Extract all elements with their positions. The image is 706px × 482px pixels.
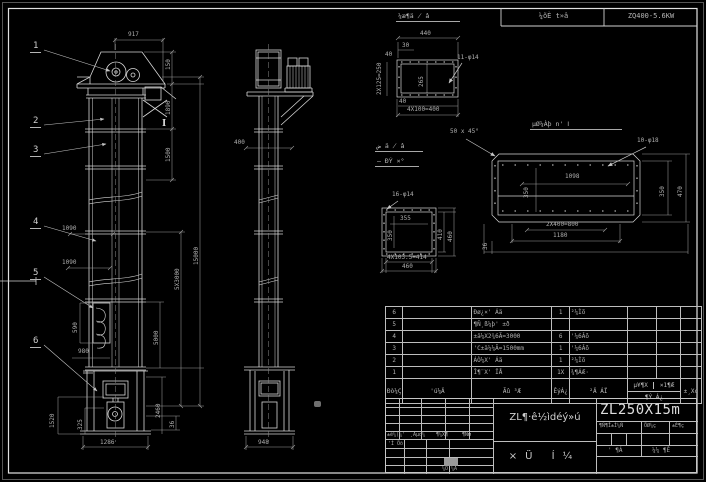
bom-cell: ¾¶ÁÆ·	[569, 367, 627, 379]
title-block-divider	[493, 399, 494, 474]
detail-top-flange-title: ¼æ¶ä ̸ â	[396, 13, 460, 22]
dim-4x100: 4X100=400	[407, 107, 440, 113]
bom-cell	[627, 319, 656, 331]
stage-label: ¶Ñ¶Î±Ì¼Ñ	[599, 424, 623, 429]
bom-cell: 1	[386, 367, 403, 379]
dim-948: 948	[258, 440, 269, 446]
dim-36: 36	[170, 421, 176, 428]
rev-label: ±ê¼(¼'	[387, 433, 405, 438]
bom-cell: 6	[386, 307, 403, 319]
drawing-subtitle: ×Ü Í¼	[493, 451, 596, 462]
signature-bottom-label: ¼Õ ¼Ä	[442, 467, 457, 472]
dim-4x103: 4X103.5=414	[387, 255, 427, 261]
bom-cell	[403, 331, 472, 343]
bom-row: 2ÁÒ¼X' Áä1²¼Ìõ	[386, 355, 702, 367]
bom-cell: 6	[552, 331, 569, 343]
balloon-4: 4	[30, 218, 41, 229]
dim-1520: 1520	[50, 414, 56, 428]
balloon-5: 5	[30, 269, 41, 280]
bom-row: 5¶Ñ¸ß¼þ' ±ð	[386, 319, 702, 331]
dim-150: 150	[166, 59, 172, 70]
bom-header-weight-unit: µ¥¶X	[628, 382, 654, 389]
bom-cell	[403, 367, 472, 379]
bom-cell	[656, 331, 680, 343]
dim-470: 470	[678, 186, 684, 197]
dim-5000: 5000	[154, 331, 160, 345]
detail-mid-flange-title1: ض ä ̸ â	[375, 143, 423, 152]
dim-1890: 1890	[166, 101, 172, 115]
bom-cell	[552, 319, 569, 331]
bom-cell: Î¶¨X' ÎÅ	[472, 367, 552, 379]
bom-cell: ±ä¼X2¾6Ã=3000	[472, 331, 552, 343]
bom-cell	[656, 307, 680, 319]
dim-325: 325	[78, 419, 84, 430]
sheet-number-label: ¼¼ ¶Ê	[652, 448, 670, 454]
balloon-6: 6	[30, 337, 41, 348]
rev-label: ¸Äµd¼	[410, 433, 425, 438]
bom-header-weight-total: ×1¶Æ	[653, 382, 680, 389]
top-bar-model-label: ZQ400-5.6KW	[607, 13, 695, 20]
dim-440: 440	[420, 31, 431, 37]
bom-table: 6Ðø¿×' Áä1²¼Ìõ 5¶Ñ¸ß¼þ' ±ð 4±ä¼X2¾6Ã=300…	[385, 306, 702, 404]
dim-980: 980	[78, 349, 89, 355]
bom-cell: ²¼Ìõ	[569, 355, 627, 367]
side-view-lines	[244, 44, 313, 442]
dim-460-v: 460	[448, 231, 454, 242]
dim-350-left: 350	[524, 187, 530, 198]
bom-cell: 1X	[552, 367, 569, 379]
cursor-artifact	[314, 401, 321, 407]
bom-cell	[627, 355, 656, 367]
dim-265: 265	[419, 76, 425, 87]
dim-355: 355	[400, 216, 411, 222]
bom-cell	[680, 307, 701, 319]
detail-flange-top-lines	[397, 60, 462, 97]
dim-1500: 1500	[166, 148, 172, 162]
title-block-divider	[596, 399, 597, 474]
bom-row: 1Î¶¨X' ÎÅ1X¾¶ÁÆ·	[386, 367, 702, 379]
dim-40: 40	[385, 52, 392, 58]
bom-cell: ÁÒ¼X' Áä	[472, 355, 552, 367]
section-mark: I	[162, 120, 166, 129]
bom-row: 4±ä¼X2¾6Ã=30006'¼6Âõ	[386, 331, 702, 343]
bom-cell	[403, 355, 472, 367]
bom-cell: 2	[386, 355, 403, 367]
bom-cell	[627, 367, 656, 379]
dim-350-mid: 350	[388, 230, 394, 241]
bom-cell: ¶Ñ¸ß¼þ' ±ð	[472, 319, 552, 331]
bom-cell: 'C±ä¼¼Ã=1500mm	[472, 343, 552, 355]
holes-11-d14: 11-φ14	[457, 55, 479, 61]
dim-917: 917	[128, 32, 139, 38]
bom-cell: 1	[552, 355, 569, 367]
dim-2x125: 2X125=250	[377, 62, 383, 95]
bom-cell: '¼6Âõ	[569, 331, 627, 343]
detail-flange-right-lines	[466, 139, 646, 222]
balloon-1: 1	[30, 42, 41, 53]
weight-label: ÖØ¼ç	[644, 424, 656, 429]
bom-cell: 1	[552, 307, 569, 319]
model-number: ZL250X15m	[600, 402, 698, 418]
bom-cell	[680, 319, 701, 331]
detail-right-flange-title: µØ¼Àþ n' Ⅰ	[530, 121, 622, 130]
bom-cell: ²¼Ìõ	[569, 307, 627, 319]
dim-2460: 2460	[156, 404, 162, 418]
dim-1180: 1180	[553, 233, 567, 239]
selection-highlight[interactable]	[444, 458, 458, 466]
dim-590: 590	[73, 322, 79, 333]
bom-cell	[680, 343, 701, 355]
dim-460: 460	[402, 264, 413, 270]
title-block: ±ê¼(¼' ¸Äµd¼ ¶¼X¶ ¶Ñм 'Ì Öõ ¼Õ ¼Ä ZL¶·ê½…	[385, 398, 697, 473]
balloon-2: 2	[30, 117, 41, 128]
bom-cell: Ðø¿×' Áä	[472, 307, 552, 319]
bom-cell	[403, 343, 472, 355]
dim-410: 410	[438, 229, 444, 240]
bom-cell	[627, 331, 656, 343]
scale-label: ±È¶ç	[672, 424, 684, 429]
bom-cell	[680, 355, 701, 367]
dim-1090-lower: 1090	[62, 260, 76, 266]
bom-cell	[656, 355, 680, 367]
dim-1098: 1098	[565, 174, 579, 180]
bom-cell: 5	[386, 319, 403, 331]
drawing-title: ZL¶·ê½ìdéý»ú	[495, 412, 595, 423]
bom-cell	[680, 367, 701, 379]
dim-1286: 1286	[100, 440, 114, 446]
bom-cell	[403, 307, 472, 319]
bom-cell	[656, 343, 680, 355]
top-bar-reducer-label: ¼õÈ t»â	[506, 13, 601, 20]
dim-40b: 40	[399, 99, 406, 105]
sheet-count-label: ' ¶Á	[608, 448, 622, 454]
rev-label: ¶Ñм	[462, 433, 471, 438]
dim-15000: 15000	[194, 247, 200, 265]
detail-flange-mid-lines	[382, 201, 436, 256]
front-view-lines	[77, 44, 176, 442]
bom-cell	[627, 307, 656, 319]
bom-cell	[656, 319, 680, 331]
holes-10-d18: 10-φ18	[637, 138, 659, 144]
balloon-leaders	[44, 50, 110, 391]
bom-cell: 4	[386, 331, 403, 343]
dim-2x400: 2X400=800	[546, 222, 579, 228]
dim-1090-upper: 1090	[62, 226, 76, 232]
dim-350-right: 350	[660, 186, 666, 197]
bom-cell	[680, 331, 701, 343]
bom-row: 6Ðø¿×' Áä1²¼Ìõ	[386, 307, 702, 319]
bom-cell: 3	[386, 343, 403, 355]
bom-row: 3'C±ä¼¼Ã=1500mm1'¼6Âõ	[386, 343, 702, 355]
balloon-3: 3	[30, 146, 41, 157]
dim-5x3000: 5X3000	[175, 268, 181, 290]
holes-16-d14: 16-φ14	[392, 192, 414, 198]
dim-400: 400	[234, 140, 245, 146]
signature-design-label: 'Ì Öõ	[388, 442, 403, 447]
bom-cell: '¼6Âõ	[569, 343, 627, 355]
dim-36b: 36	[483, 243, 489, 250]
bom-cell	[403, 319, 472, 331]
rev-label: ¶¼X¶	[436, 433, 448, 438]
chamfer-note: 50 x 45°	[450, 129, 479, 135]
bom-cell	[627, 343, 656, 355]
bom-cell: 1	[552, 343, 569, 355]
dim-30: 30	[402, 43, 409, 49]
detail-mid-flange-title2: ̶ ÐÝ ×°	[375, 158, 419, 167]
bom-cell	[569, 319, 627, 331]
cad-drawing-canvas[interactable]: ¼õÈ t»â ZQ400-5.6KW 1 2 3 4 5 6 I 917 15…	[0, 0, 706, 482]
bom-cell	[656, 367, 680, 379]
